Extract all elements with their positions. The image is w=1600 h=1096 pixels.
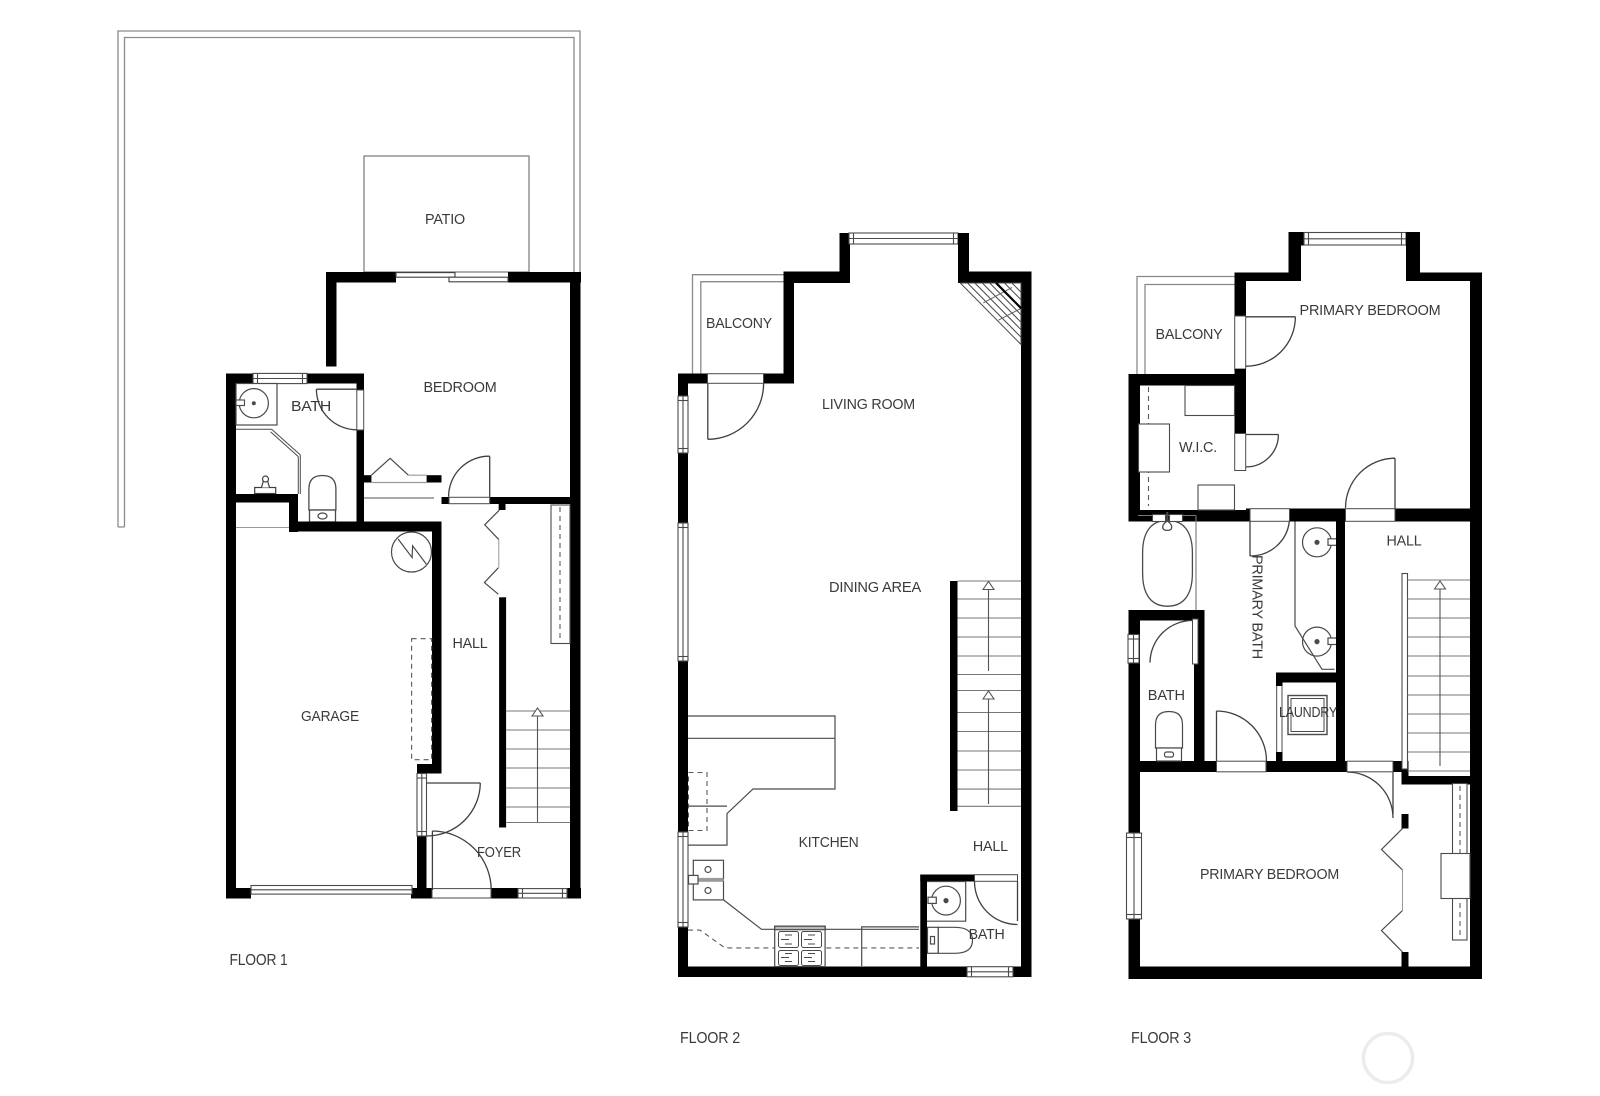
svg-text:KITCHEN: KITCHEN bbox=[799, 835, 859, 851]
svg-text:FLOOR 2: FLOOR 2 bbox=[680, 1030, 740, 1047]
svg-text:BATH: BATH bbox=[1148, 688, 1185, 704]
svg-text:PRIMARY BEDROOM: PRIMARY BEDROOM bbox=[1200, 867, 1339, 883]
svg-text:BEDROOM: BEDROOM bbox=[424, 380, 497, 396]
svg-text:W.I.C.: W.I.C. bbox=[1179, 440, 1217, 456]
svg-text:FLOOR 3: FLOOR 3 bbox=[1131, 1030, 1191, 1047]
svg-text:PRIMARY BEDROOM: PRIMARY BEDROOM bbox=[1300, 303, 1441, 319]
svg-text:FOYER: FOYER bbox=[477, 845, 521, 861]
svg-text:HALL: HALL bbox=[1387, 534, 1422, 550]
svg-text:PATIO: PATIO bbox=[425, 212, 465, 228]
svg-text:FLOOR 1: FLOOR 1 bbox=[230, 952, 288, 969]
svg-text:BATH: BATH bbox=[969, 927, 1005, 943]
svg-text:LIVING ROOM: LIVING ROOM bbox=[822, 397, 915, 413]
svg-text:HALL: HALL bbox=[453, 636, 488, 652]
svg-text:DINING AREA: DINING AREA bbox=[829, 580, 922, 596]
svg-text:BALCONY: BALCONY bbox=[1156, 327, 1224, 343]
svg-text:BATH: BATH bbox=[291, 399, 331, 415]
svg-text:HALL: HALL bbox=[973, 839, 1008, 855]
svg-text:GARAGE: GARAGE bbox=[301, 709, 360, 725]
svg-text:BALCONY: BALCONY bbox=[706, 316, 773, 332]
svg-text:PRIMARY BATH: PRIMARY BATH bbox=[1248, 555, 1264, 659]
svg-text:LAUNDRY: LAUNDRY bbox=[1279, 705, 1337, 721]
